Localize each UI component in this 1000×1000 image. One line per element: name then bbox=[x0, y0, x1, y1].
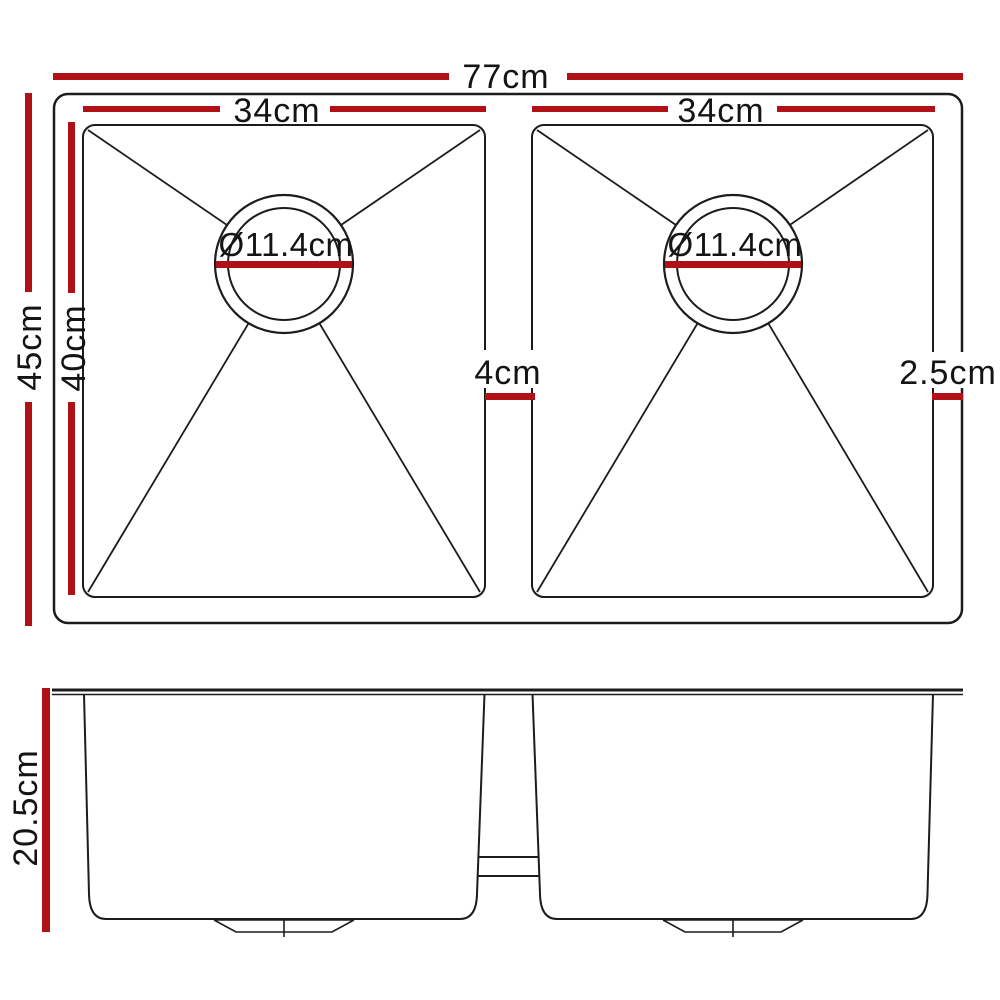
sink-dimension-diagram: 77cm 34cm 34cm Ø11.4cm Ø11.4cm 4cm 2.5cm… bbox=[0, 0, 1000, 1000]
side-view-right-drain bbox=[663, 919, 803, 937]
dim-77cm-bar-left bbox=[53, 73, 449, 80]
dim-34cm-left-bar-a bbox=[83, 106, 220, 112]
side-view-left-bowl-profile bbox=[84, 694, 485, 919]
dim-45cm-bar-bottom bbox=[25, 402, 32, 626]
diagram-svg: 77cm 34cm 34cm Ø11.4cm Ø11.4cm 4cm 2.5cm… bbox=[0, 0, 1000, 1000]
dim-4cm-bar bbox=[485, 393, 535, 400]
dim-34cm-right-bar-b bbox=[777, 106, 935, 112]
side-view-left-drain bbox=[214, 919, 354, 937]
dim-34cm-left-bar-b bbox=[330, 106, 486, 112]
dim-40cm-bar-bottom bbox=[68, 402, 75, 595]
dim-20-5cm-label: 20.5cm bbox=[7, 749, 45, 867]
dim-40cm-bar-top bbox=[68, 122, 75, 293]
dim-34cm-right-bar-a bbox=[532, 106, 668, 112]
side-view-right-bowl-profile bbox=[533, 694, 934, 919]
dim-4cm-label: 4cm bbox=[474, 354, 541, 392]
dim-diameter-left-label: Ø11.4cm bbox=[219, 226, 354, 263]
dim-40cm-label: 40cm bbox=[55, 304, 93, 391]
sink-side-view bbox=[52, 690, 963, 937]
dim-77cm-bar-right bbox=[567, 73, 963, 80]
dim-2-5cm-bar bbox=[932, 393, 963, 400]
dim-2-5cm-label: 2.5cm bbox=[899, 354, 997, 392]
dim-45cm-bar-top bbox=[25, 93, 32, 292]
dim-77cm-label: 77cm bbox=[462, 58, 549, 96]
dim-diameter-right-label: Ø11.4cm bbox=[668, 226, 803, 263]
dim-34cm-right-label: 34cm bbox=[677, 92, 764, 130]
dim-34cm-left-label: 34cm bbox=[233, 92, 320, 130]
dim-45cm-label: 45cm bbox=[11, 303, 49, 390]
